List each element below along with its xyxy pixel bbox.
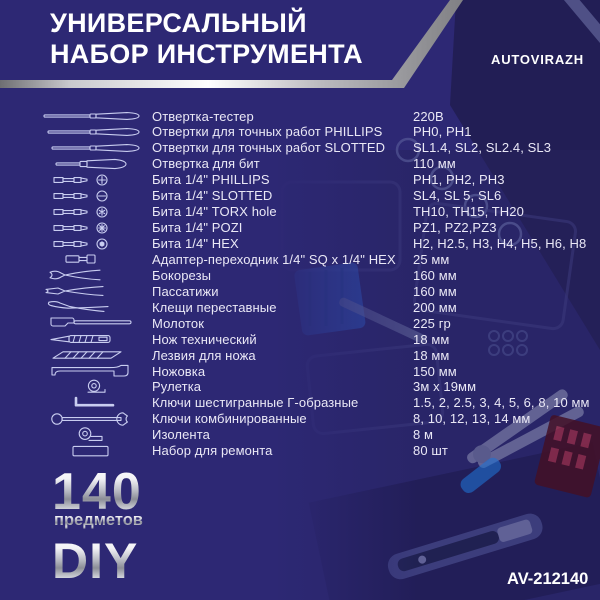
page-title: УНИВЕРСАЛЬНЫЙ НАБОР ИНСТРУМЕНТА: [50, 8, 363, 70]
spec-name: Бокорезы: [152, 268, 413, 283]
brand-logo: AUTOVIRAZH: [491, 52, 584, 67]
spec-name: Бита 1/4" POZI: [152, 220, 413, 235]
spec-name: Бита 1/4" TORX hole: [152, 204, 413, 219]
spec-row: Набор для ремонта 80 шт: [42, 443, 590, 459]
spec-value: 25 мм: [413, 252, 590, 267]
bit-hex-icon: [42, 236, 142, 252]
spec-name: Бита 1/4" HEX: [152, 236, 413, 251]
spec-value: PZ1, PZ2,PZ3: [413, 220, 590, 235]
pliers-icon: [42, 283, 142, 299]
spec-name: Ножовка: [152, 364, 413, 379]
spec-row: Бита 1/4" HEX H2, H2.5, H3, H4, H5, H6, …: [42, 236, 590, 252]
spec-row: Отвертка для бит 110 мм: [42, 156, 590, 172]
diy-badge: DIY: [52, 532, 138, 590]
spec-value: 150 мм: [413, 364, 590, 379]
spec-name: Отвертки для точных работ PHILLIPS: [152, 124, 413, 139]
spec-value: 3м x 19мм: [413, 379, 590, 394]
spec-name: Клещи переставные: [152, 300, 413, 315]
spec-row: Рулетка 3м x 19мм: [42, 379, 590, 395]
spec-row: Адаптер-переходник 1/4" SQ x 1/4" HEX 25…: [42, 251, 590, 267]
spec-row: Клещи переставные 200 мм: [42, 299, 590, 315]
spec-row: Нож технический 18 мм: [42, 331, 590, 347]
bit-driver-icon: [42, 156, 142, 172]
spec-row: Отвертка-тестер 220В: [42, 108, 590, 124]
spec-value: 220В: [413, 109, 590, 124]
spec-name: Лезвия для ножа: [152, 348, 413, 363]
spec-value: 18 мм: [413, 348, 590, 363]
spec-row: Ключи комбинированные 8, 10, 12, 13, 14 …: [42, 411, 590, 427]
spec-value: 8 м: [413, 427, 590, 442]
spec-value: 80 шт: [413, 443, 590, 458]
spec-value: 18 мм: [413, 332, 590, 347]
spec-value: PH0, PH1: [413, 124, 590, 139]
spec-value: 110 мм: [413, 156, 590, 171]
hammer-icon: [42, 315, 142, 331]
spec-row: Ножовка 150 мм: [42, 363, 590, 379]
hacksaw-icon: [42, 363, 142, 379]
spec-value: SL4, SL 5, SL6: [413, 188, 590, 203]
insulating-tape-icon: [42, 427, 142, 443]
spec-value: TH10, TH15, TH20: [413, 204, 590, 219]
spec-list: Отвертка-тестер 220В Отвертки для точных…: [42, 108, 590, 459]
spec-value: 8, 10, 12, 13, 14 мм: [413, 411, 590, 426]
spec-value: PH1, PH2, PH3: [413, 172, 590, 187]
spec-name: Изолента: [152, 427, 413, 442]
blade-icon: [42, 347, 142, 363]
spec-row: Отвертки для точных работ SLOTTED SL1.4,…: [42, 140, 590, 156]
spec-row: Лезвия для ножа 18 мм: [42, 347, 590, 363]
spec-name: Отвертки для точных работ SLOTTED: [152, 140, 413, 155]
spec-name: Отвертка-тестер: [152, 109, 413, 124]
spec-row: Пассатижи 160 мм: [42, 283, 590, 299]
tape-measure-icon: [42, 379, 142, 395]
model-number: AV-212140: [507, 570, 588, 589]
spec-row: Ключи шестигранные Г-образные 1.5, 2, 2.…: [42, 395, 590, 411]
packaging-label: УНИВЕРСАЛЬНЫЙ НАБОР ИНСТРУМЕНТА AUTOVIRA…: [0, 0, 600, 600]
spec-row: Изолента 8 м: [42, 427, 590, 443]
spec-row: Бита 1/4" PHILLIPS PH1, PH2, PH3: [42, 172, 590, 188]
adapter-icon: [42, 251, 142, 267]
spec-value: SL1.4, SL2, SL2.4, SL3: [413, 140, 590, 155]
spec-name: Пассатижи: [152, 284, 413, 299]
spec-value: 200 мм: [413, 300, 590, 315]
side-cutters-icon: [42, 267, 142, 283]
spec-value: 1.5, 2, 2.5, 3, 4, 5, 6, 8, 10 мм: [413, 395, 590, 410]
spec-name: Бита 1/4" PHILLIPS: [152, 172, 413, 187]
bit-torx-icon: [42, 204, 142, 220]
spec-value: 160 мм: [413, 284, 590, 299]
bit-phillips-icon: [42, 172, 142, 188]
spec-name: Набор для ремонта: [152, 443, 413, 458]
bit-pozi-icon: [42, 220, 142, 236]
spec-name: Ключи шестигранные Г-образные: [152, 395, 413, 410]
spec-name: Отвертка для бит: [152, 156, 413, 171]
spec-row: Отвертки для точных работ PHILLIPS PH0, …: [42, 124, 590, 140]
repair-kit-icon: [42, 443, 142, 459]
spec-row: Бита 1/4" POZI PZ1, PZ2,PZ3: [42, 220, 590, 236]
combination-wrench-icon: [42, 411, 142, 427]
spec-name: Рулетка: [152, 379, 413, 394]
utility-knife-icon: [42, 331, 142, 347]
item-count-label: предметов: [54, 511, 143, 530]
spec-value: H2, H2.5, H3, H4, H5, H6, H8: [413, 236, 590, 251]
spec-row: Молоток 225 гр: [42, 315, 590, 331]
spec-name: Нож технический: [152, 332, 413, 347]
hex-key-icon: [42, 395, 142, 411]
spec-row: Бокорезы 160 мм: [42, 267, 590, 283]
spec-name: Молоток: [152, 316, 413, 331]
spec-value: 225 гр: [413, 316, 590, 331]
title-line-1: УНИВЕРСАЛЬНЫЙ: [50, 8, 363, 39]
precision-screwdriver-phillips-icon: [42, 124, 142, 140]
groove-pliers-icon: [42, 299, 142, 315]
spec-row: Бита 1/4" SLOTTED SL4, SL 5, SL6: [42, 188, 590, 204]
spec-name: Бита 1/4" SLOTTED: [152, 188, 413, 203]
spec-row: Бита 1/4" TORX hole TH10, TH15, TH20: [42, 204, 590, 220]
bit-slotted-icon: [42, 188, 142, 204]
tester-screwdriver-icon: [42, 108, 142, 124]
spec-value: 160 мм: [413, 268, 590, 283]
title-line-2: НАБОР ИНСТРУМЕНТА: [50, 39, 363, 70]
precision-screwdriver-slotted-icon: [42, 140, 142, 156]
spec-name: Ключи комбинированные: [152, 411, 413, 426]
spec-name: Адаптер-переходник 1/4" SQ x 1/4" HEX: [152, 252, 413, 267]
